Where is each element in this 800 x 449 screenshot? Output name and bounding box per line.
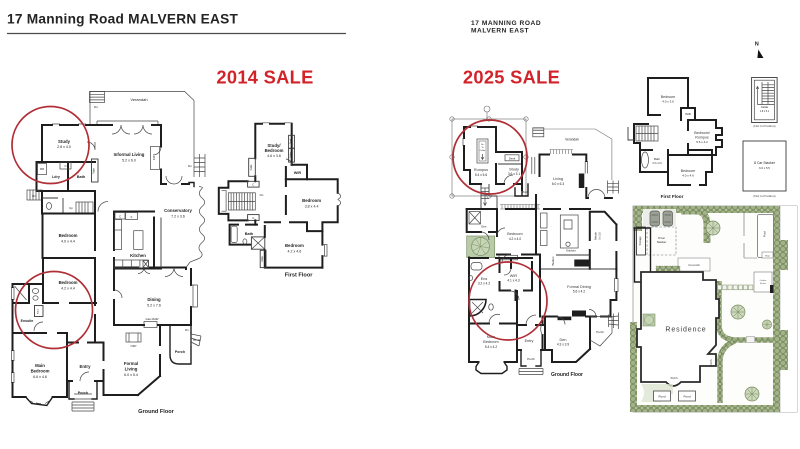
svg-text:N: N: [755, 42, 759, 48]
svg-text:Bath: Bath: [77, 175, 86, 179]
svg-text:Study: Study: [509, 168, 519, 172]
svg-text:Desk: Desk: [290, 138, 293, 144]
svg-text:Dn: Dn: [185, 328, 189, 332]
svg-text:WIR: WIR: [294, 171, 302, 175]
svg-text:Pwd: Pwd: [523, 191, 528, 194]
svg-text:5.4 x 4.2: 5.4 x 4.2: [485, 345, 497, 349]
svg-text:4.2 x 4.4: 4.2 x 4.4: [61, 287, 75, 291]
svg-text:3.2 x 4.2: 3.2 x 4.2: [478, 282, 490, 286]
svg-text:Ensuite: Ensuite: [21, 319, 34, 323]
svg-text:3.6 x 3.1: 3.6 x 3.1: [508, 172, 520, 176]
svg-text:17 MANNING ROAD: 17 MANNING ROAD: [471, 20, 541, 27]
svg-text:Living: Living: [553, 177, 563, 181]
svg-text:Up: Up: [69, 206, 73, 210]
svg-text:(Not In Position): (Not In Position): [753, 194, 775, 198]
svg-text:6.6 x 4.6: 6.6 x 4.6: [33, 375, 47, 379]
svg-text:Ground Floor: Ground Floor: [551, 372, 583, 378]
svg-text:Gas DHW: Gas DHW: [145, 317, 158, 321]
svg-text:Dn: Dn: [260, 193, 264, 197]
svg-text:Bedroom: Bedroom: [681, 169, 696, 173]
svg-text:5.2 x 7.6: 5.2 x 7.6: [147, 304, 161, 308]
svg-text:Entry: Entry: [80, 364, 92, 369]
svg-text:Bedroom: Bedroom: [265, 148, 284, 153]
svg-text:Formal Dining: Formal Dining: [567, 285, 591, 289]
svg-text:WIR: WIR: [685, 112, 691, 116]
svg-text:Bedroom: Bedroom: [661, 95, 676, 99]
svg-text:Kitchen: Kitchen: [760, 282, 766, 285]
svg-text:Pool: Pool: [763, 231, 767, 237]
svg-text:17 Manning Road MALVERN EAST: 17 Manning Road MALVERN EAST: [7, 12, 238, 27]
svg-text:Porch: Porch: [709, 359, 713, 366]
svg-text:2025 SALE: 2025 SALE: [463, 67, 560, 88]
svg-text:Robe: Robe: [38, 308, 40, 314]
svg-text:Bedroom: Bedroom: [507, 232, 522, 236]
svg-text:Porch: Porch: [527, 357, 535, 361]
svg-text:Rumpus: Rumpus: [474, 168, 488, 172]
svg-text:4.0 x 4.6: 4.0 x 4.6: [682, 174, 694, 178]
svg-text:Bedroom: Bedroom: [285, 243, 304, 248]
svg-text:Kitchen: Kitchen: [130, 253, 146, 258]
svg-text:4.3 x 3.9: 4.3 x 3.9: [557, 343, 569, 347]
svg-text:4.6 x 3.6: 4.6 x 3.6: [267, 154, 281, 158]
svg-text:Dining: Dining: [147, 297, 161, 302]
svg-text:Porch: Porch: [671, 376, 678, 380]
svg-text:4.0 x 4.4: 4.0 x 4.4: [61, 240, 75, 244]
svg-text:440: 440: [152, 155, 156, 160]
svg-text:Bedroom: Bedroom: [59, 280, 78, 285]
svg-text:4.1 x 4.3: 4.1 x 4.3: [507, 279, 519, 283]
svg-text:OFP: OFP: [131, 344, 137, 348]
svg-text:Entry: Entry: [525, 339, 534, 343]
svg-text:2.8 x 4.0: 2.8 x 4.0: [57, 145, 71, 149]
svg-text:Kitchen: Kitchen: [566, 249, 576, 253]
svg-text:5 x 3.5: 5 x 3.5: [599, 232, 602, 240]
svg-text:First Floor: First Floor: [285, 273, 313, 279]
svg-text:Living: Living: [125, 367, 138, 372]
svg-text:C: C: [64, 164, 66, 168]
svg-text:Porch: Porch: [596, 330, 604, 334]
svg-text:6.0 x 5.4: 6.0 x 5.4: [124, 373, 138, 377]
svg-text:1.8 x 5.1: 1.8 x 5.1: [760, 110, 770, 113]
svg-text:F: F: [131, 215, 133, 219]
svg-text:6.0 x 5.5: 6.0 x 5.5: [759, 166, 770, 170]
svg-text:Verandah: Verandah: [130, 97, 147, 102]
svg-text:Verandah: Verandah: [688, 263, 700, 267]
svg-text:Residence: Residence: [665, 327, 706, 334]
svg-text:Bedroom: Bedroom: [483, 340, 498, 344]
svg-text:WIR: WIR: [510, 274, 518, 278]
svg-text:5.6 x 4.2: 5.6 x 4.2: [696, 140, 708, 144]
svg-text:Rumpus: Rumpus: [695, 136, 709, 140]
svg-text:Cellar: Cellar: [761, 105, 769, 109]
svg-text:3.8 x 4.4: 3.8 x 4.4: [305, 205, 319, 209]
svg-text:4.2 x 4.0: 4.2 x 4.0: [509, 237, 521, 241]
svg-text:Ground Floor: Ground Floor: [138, 409, 175, 415]
svg-text:Bedroom/: Bedroom/: [694, 131, 710, 135]
svg-text:Bedroom: Bedroom: [302, 198, 321, 203]
svg-text:Butlers: Butlers: [551, 256, 555, 266]
svg-text:Pond: Pond: [658, 395, 665, 399]
svg-text:Pond: Pond: [683, 395, 690, 399]
svg-text:Porch: Porch: [175, 350, 185, 354]
svg-text:C: C: [252, 216, 254, 220]
svg-text:Conservatory: Conservatory: [164, 208, 192, 213]
svg-text:C: C: [119, 215, 121, 219]
svg-text:Ldry: Ldry: [52, 175, 60, 179]
svg-text:Cellar: Cellar: [480, 149, 486, 152]
svg-text:Verandah: Verandah: [565, 138, 579, 142]
svg-text:MALVERN EAST: MALVERN EAST: [471, 28, 529, 35]
svg-text:Robe: Robe: [290, 151, 293, 157]
svg-text:First Floor: First Floor: [661, 194, 684, 199]
svg-text:Stacker: Stacker: [657, 240, 667, 244]
svg-text:Meals: Meals: [594, 232, 598, 240]
svg-text:5.4 x 5.6: 5.4 x 5.6: [475, 173, 487, 177]
svg-text:Informal Living: Informal Living: [114, 152, 145, 157]
svg-text:Bedroom: Bedroom: [59, 233, 78, 238]
svg-text:2014 SALE: 2014 SALE: [216, 67, 313, 88]
svg-text:Dn: Dn: [94, 105, 98, 109]
svg-text:4.0 x 3.6: 4.0 x 3.6: [662, 100, 674, 104]
svg-text:Outdoor: Outdoor: [760, 279, 767, 282]
svg-text:Study: Study: [58, 139, 71, 144]
svg-text:Ens: Ens: [481, 277, 488, 281]
svg-text:WM: WM: [40, 168, 44, 171]
svg-text:Storage: Storage: [638, 236, 642, 246]
svg-text:Bath: Bath: [654, 157, 660, 161]
svg-text:Formal: Formal: [124, 361, 138, 366]
svg-text:Robe: Robe: [261, 255, 264, 261]
svg-text:4.2 x 4.6: 4.2 x 4.6: [288, 250, 302, 254]
svg-text:5.2 x 6.0: 5.2 x 6.0: [122, 159, 136, 163]
svg-text:Bath: Bath: [245, 232, 254, 236]
svg-text:Heat: Heat: [765, 254, 770, 257]
svg-text:Dn: Dn: [32, 194, 36, 198]
svg-text:Robe: Robe: [93, 167, 96, 173]
svg-text:Dn: Dn: [188, 164, 192, 168]
svg-text:Porch: Porch: [78, 391, 88, 395]
svg-text:(Not In Position): (Not In Position): [753, 124, 775, 128]
svg-text:3.3 x 2.9: 3.3 x 2.9: [652, 162, 662, 165]
svg-text:7.2 x 3.6: 7.2 x 3.6: [171, 215, 185, 219]
svg-text:Robe: Robe: [250, 164, 253, 170]
svg-text:C: C: [252, 183, 254, 187]
svg-text:6.0 x 6.3: 6.0 x 6.3: [552, 182, 564, 186]
svg-text:Desk: Desk: [509, 156, 516, 160]
svg-text:Main: Main: [35, 363, 45, 368]
svg-text:Bedroom: Bedroom: [31, 369, 50, 374]
svg-text:Den: Den: [560, 338, 567, 342]
svg-text:8 Car Stacker: 8 Car Stacker: [754, 161, 776, 165]
svg-text:5.6 x 4.2: 5.6 x 4.2: [573, 290, 585, 294]
svg-text:Ens: Ens: [482, 225, 488, 229]
